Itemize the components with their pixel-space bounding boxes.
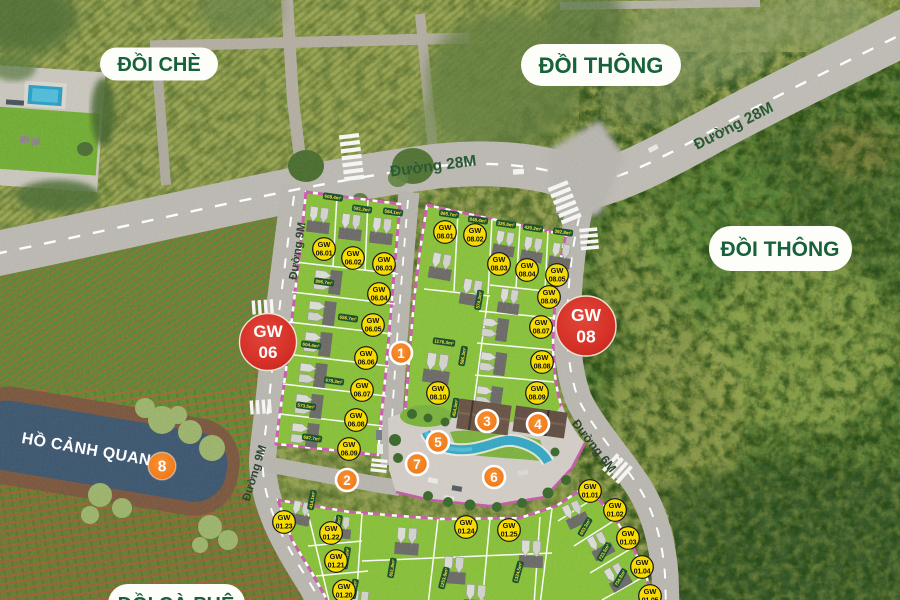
svg-text:GW: GW [460, 518, 473, 527]
svg-text:GW: GW [356, 381, 369, 390]
svg-text:GW: GW [493, 255, 506, 264]
svg-text:01.04: 01.04 [634, 568, 651, 576]
svg-text:GW: GW [350, 411, 363, 420]
svg-text:GW: GW [360, 349, 373, 358]
svg-text:01.23: 01.23 [276, 523, 293, 531]
svg-text:8: 8 [158, 459, 167, 476]
svg-text:06.03: 06.03 [376, 265, 393, 273]
svg-text:01.24: 01.24 [458, 528, 475, 536]
svg-text:01.22: 01.22 [323, 534, 340, 542]
svg-text:GW: GW [373, 285, 386, 294]
svg-text:06.02: 06.02 [345, 259, 362, 267]
svg-text:06.04: 06.04 [371, 295, 388, 303]
svg-text:06.05: 06.05 [365, 326, 382, 334]
svg-text:01.03: 01.03 [620, 539, 637, 547]
svg-text:08.03: 08.03 [491, 265, 508, 273]
svg-text:1: 1 [397, 346, 405, 361]
svg-text:GW: GW [469, 226, 482, 235]
svg-text:GW: GW [536, 353, 549, 362]
svg-text:06.08: 06.08 [348, 421, 365, 429]
svg-text:GW: GW [551, 266, 564, 275]
svg-text:01.01: 01.01 [582, 492, 599, 500]
svg-text:GW: GW [439, 223, 452, 232]
svg-text:GW: GW [318, 240, 331, 249]
svg-text:GW: GW [531, 384, 544, 393]
svg-text:GW: GW [253, 322, 283, 341]
svg-text:GW: GW [347, 249, 360, 258]
svg-text:GW: GW [378, 255, 391, 264]
svg-text:01.02: 01.02 [607, 511, 624, 519]
svg-text:01.05: 01.05 [642, 597, 659, 600]
svg-text:6: 6 [490, 470, 498, 485]
svg-text:ĐỒI CHÈ: ĐỒI CHÈ [117, 52, 200, 76]
svg-text:08.04: 08.04 [519, 271, 536, 279]
svg-text:GW: GW [584, 482, 597, 491]
svg-text:01.20: 01.20 [336, 592, 353, 600]
svg-text:2: 2 [343, 473, 351, 488]
svg-text:4: 4 [534, 417, 542, 432]
svg-text:ĐỒI CÀ PHÊ: ĐỒI CÀ PHÊ [118, 592, 235, 600]
svg-text:GW: GW [338, 582, 351, 591]
svg-text:3: 3 [483, 414, 491, 429]
svg-text:06.07: 06.07 [354, 391, 371, 399]
svg-text:GW: GW [503, 521, 516, 530]
svg-text:08.09: 08.09 [529, 394, 546, 402]
svg-text:06.09: 06.09 [341, 450, 358, 458]
svg-text:01.21: 01.21 [328, 562, 345, 570]
svg-text:08.08: 08.08 [534, 363, 551, 371]
svg-text:08.01: 08.01 [437, 233, 454, 241]
svg-text:08.05: 08.05 [549, 276, 566, 284]
svg-text:08: 08 [576, 327, 596, 347]
svg-text:GW: GW [622, 529, 635, 538]
svg-text:06.06: 06.06 [358, 359, 375, 367]
svg-text:GW: GW [543, 288, 556, 297]
svg-text:ĐỒI THÔNG: ĐỒI THÔNG [721, 237, 840, 261]
svg-text:06.01: 06.01 [316, 250, 333, 258]
svg-text:08.07: 08.07 [533, 328, 550, 336]
svg-text:ĐỒI THÔNG: ĐỒI THÔNG [539, 53, 664, 78]
svg-text:GW: GW [325, 524, 338, 533]
svg-text:GW: GW [521, 261, 534, 270]
svg-text:GW: GW [636, 558, 649, 567]
svg-text:08.10: 08.10 [430, 394, 447, 402]
svg-text:5: 5 [434, 435, 442, 450]
svg-text:GW: GW [367, 316, 380, 325]
svg-text:08.02: 08.02 [467, 236, 484, 244]
svg-text:GW: GW [535, 318, 548, 327]
svg-text:GW: GW [571, 305, 602, 325]
svg-text:GW: GW [432, 384, 445, 393]
svg-text:08.06: 08.06 [541, 298, 558, 306]
svg-text:GW: GW [644, 587, 657, 596]
svg-text:01.25: 01.25 [501, 531, 518, 539]
svg-text:GW: GW [609, 501, 622, 510]
svg-text:GW: GW [330, 552, 343, 561]
svg-text:06: 06 [259, 343, 278, 362]
svg-text:GW: GW [278, 513, 291, 522]
svg-text:GW: GW [343, 440, 356, 449]
svg-text:7: 7 [413, 457, 421, 472]
